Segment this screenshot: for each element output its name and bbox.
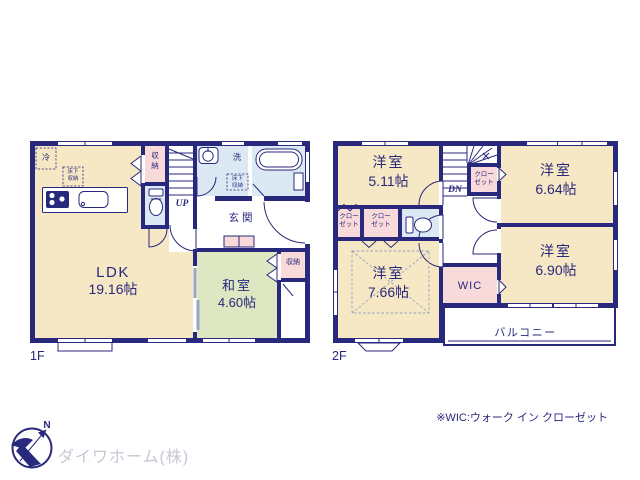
bedroom-sw-label: 洋室	[338, 265, 439, 283]
toilet-icon-2f	[406, 217, 432, 233]
underfloor-storage-label-1: 床下収納	[67, 169, 80, 183]
bay-window-2f	[358, 343, 400, 351]
toilet-icon-1f	[149, 189, 163, 216]
floorplan-canvas	[0, 0, 640, 480]
floorplan-page: LDK 19.16帖 和室 4.60帖 冷 床下収納 収納 洗 床下収納 玄関 …	[0, 0, 640, 480]
balcony-label: バルコニー	[463, 326, 588, 340]
bedroom-sw-size: 7.66帖	[338, 284, 439, 302]
bedroom-ne-label: 洋室	[498, 162, 614, 180]
storage-washitsu-label: 収納	[281, 259, 305, 268]
underfloor-storage-label-2: 床下収納	[231, 176, 244, 190]
bedroom-se-label: 洋室	[498, 243, 614, 261]
shoe-cabinet	[224, 236, 254, 247]
bedroom-ne-size: 6.64帖	[498, 181, 614, 199]
wic-note: ※WIC:ウォーク イン クローゼット	[370, 411, 608, 425]
washitsu-label: 和室	[197, 278, 277, 295]
bay-window-1f	[58, 343, 112, 351]
closet3-label: クローゼット	[474, 171, 495, 188]
wic-label: WIC	[443, 279, 497, 293]
genkan-label: 玄関	[210, 212, 274, 225]
compass-north-label: N	[40, 420, 54, 433]
stove-icon	[46, 191, 69, 208]
closet2-label: クローゼット	[371, 213, 392, 230]
stairs-dn-label: DN	[442, 184, 468, 196]
floor1-label: 1F	[30, 348, 60, 364]
closet1-label: クローゼット	[339, 213, 360, 230]
fridge-label: 冷	[36, 153, 56, 163]
ldk-size: 19.16帖	[53, 281, 173, 299]
laundry-label: 洗	[228, 152, 246, 163]
storage-hall-label: 収納	[150, 151, 161, 171]
stairs-up-label: UP	[169, 198, 195, 210]
floor2-label: 2F	[332, 348, 362, 364]
washbasin-icon	[199, 148, 218, 164]
washitsu-size: 4.60帖	[197, 295, 277, 312]
ldk-label: LDK	[53, 263, 173, 282]
bedroom-se-size: 6.90帖	[498, 262, 614, 280]
company-name: ダイワホーム(株)	[58, 448, 278, 468]
bedroom-nw-size: 5.11帖	[338, 173, 439, 191]
bedroom-nw-label: 洋室	[338, 154, 439, 172]
compass-icon	[11, 429, 52, 468]
sink-icon	[79, 192, 108, 208]
